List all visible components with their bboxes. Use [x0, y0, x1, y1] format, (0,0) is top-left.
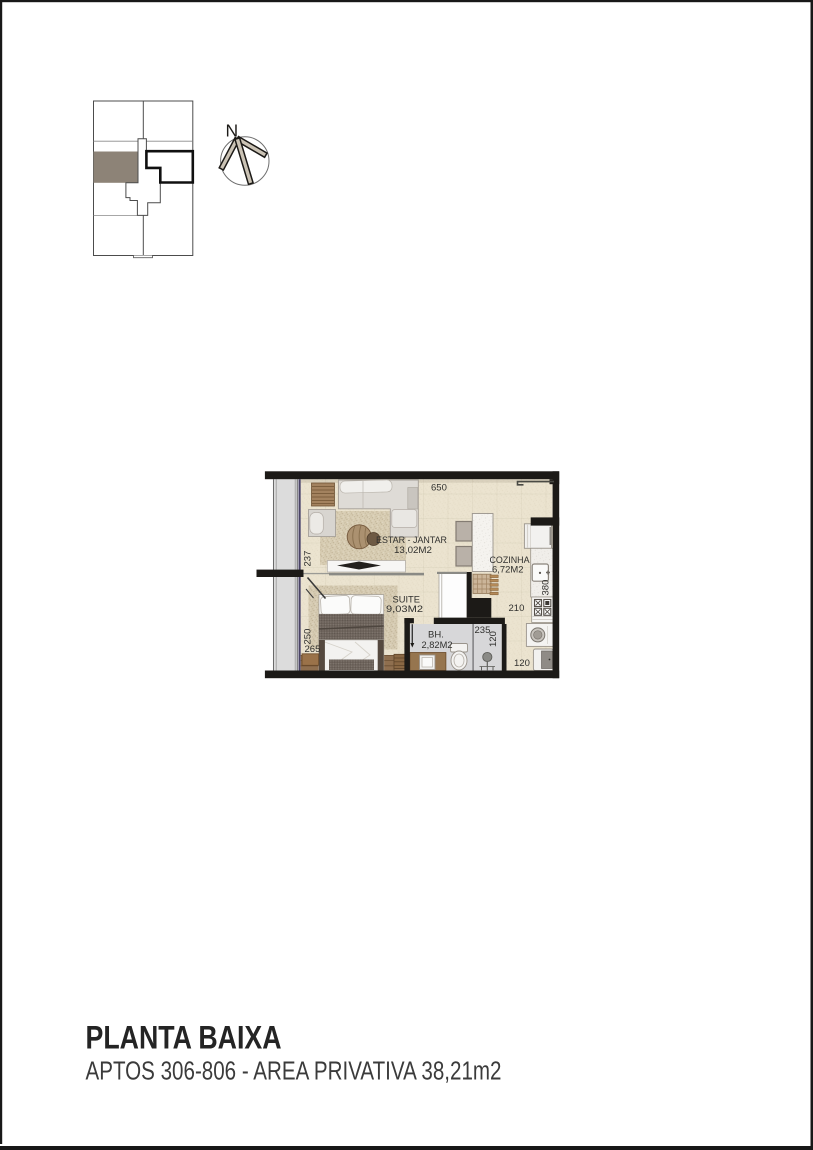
svg-text:250: 250 — [303, 629, 314, 645]
svg-text:BH.: BH. — [428, 630, 444, 641]
svg-text:237: 237 — [303, 551, 314, 567]
svg-text:265: 265 — [305, 644, 321, 655]
svg-text:APTOS 306-806 - AREA PRIVATIVA: APTOS 306-806 - AREA PRIVATIVA 38,21m2 — [86, 1058, 502, 1086]
svg-text:2,82M2: 2,82M2 — [422, 640, 453, 651]
svg-text:650: 650 — [431, 483, 447, 494]
svg-text:210: 210 — [509, 603, 525, 614]
svg-text:13,02M2: 13,02M2 — [394, 545, 432, 556]
svg-text:6,72M2: 6,72M2 — [492, 565, 524, 576]
svg-text:120: 120 — [514, 658, 530, 669]
svg-text:380: 380 — [541, 580, 552, 596]
svg-text:PLANTA BAIXA: PLANTA BAIXA — [86, 1020, 282, 1056]
svg-text:9,03M2: 9,03M2 — [386, 604, 423, 615]
svg-text:120: 120 — [488, 631, 499, 647]
